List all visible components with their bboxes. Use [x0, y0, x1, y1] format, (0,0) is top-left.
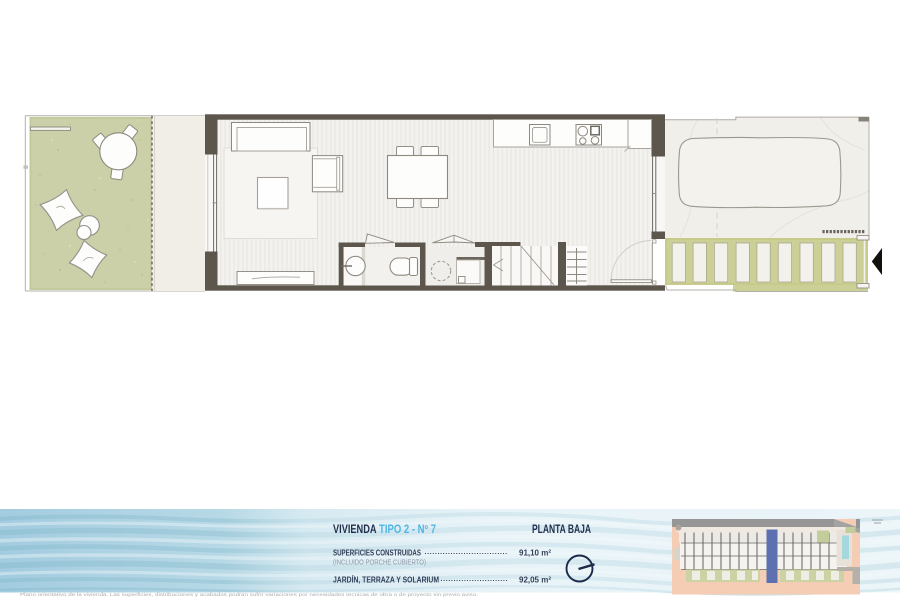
svg-text:(INCLUIDO PORCHE CUBIERTO): (INCLUIDO PORCHE CUBIERTO) — [333, 558, 426, 567]
svg-text:TIPO 2 - Nº 7: TIPO 2 - Nº 7 — [379, 524, 436, 536]
svg-text:PLANTA BAJA: PLANTA BAJA — [532, 524, 591, 536]
svg-text:91,10 m²: 91,10 m² — [519, 548, 551, 558]
svg-text:SUPERFICIES CONSTRUIDAS: SUPERFICIES CONSTRUIDAS — [333, 548, 421, 558]
svg-text:Plano orientativo de la vivien: Plano orientativo de la vivienda. Las su… — [20, 592, 478, 597]
svg-text:92,05 m²: 92,05 m² — [519, 575, 551, 585]
svg-text:VIVIENDA: VIVIENDA — [333, 524, 377, 536]
svg-text:JARDÍN, TERRAZA Y SOLARIUM: JARDÍN, TERRAZA Y SOLARIUM — [333, 575, 439, 585]
